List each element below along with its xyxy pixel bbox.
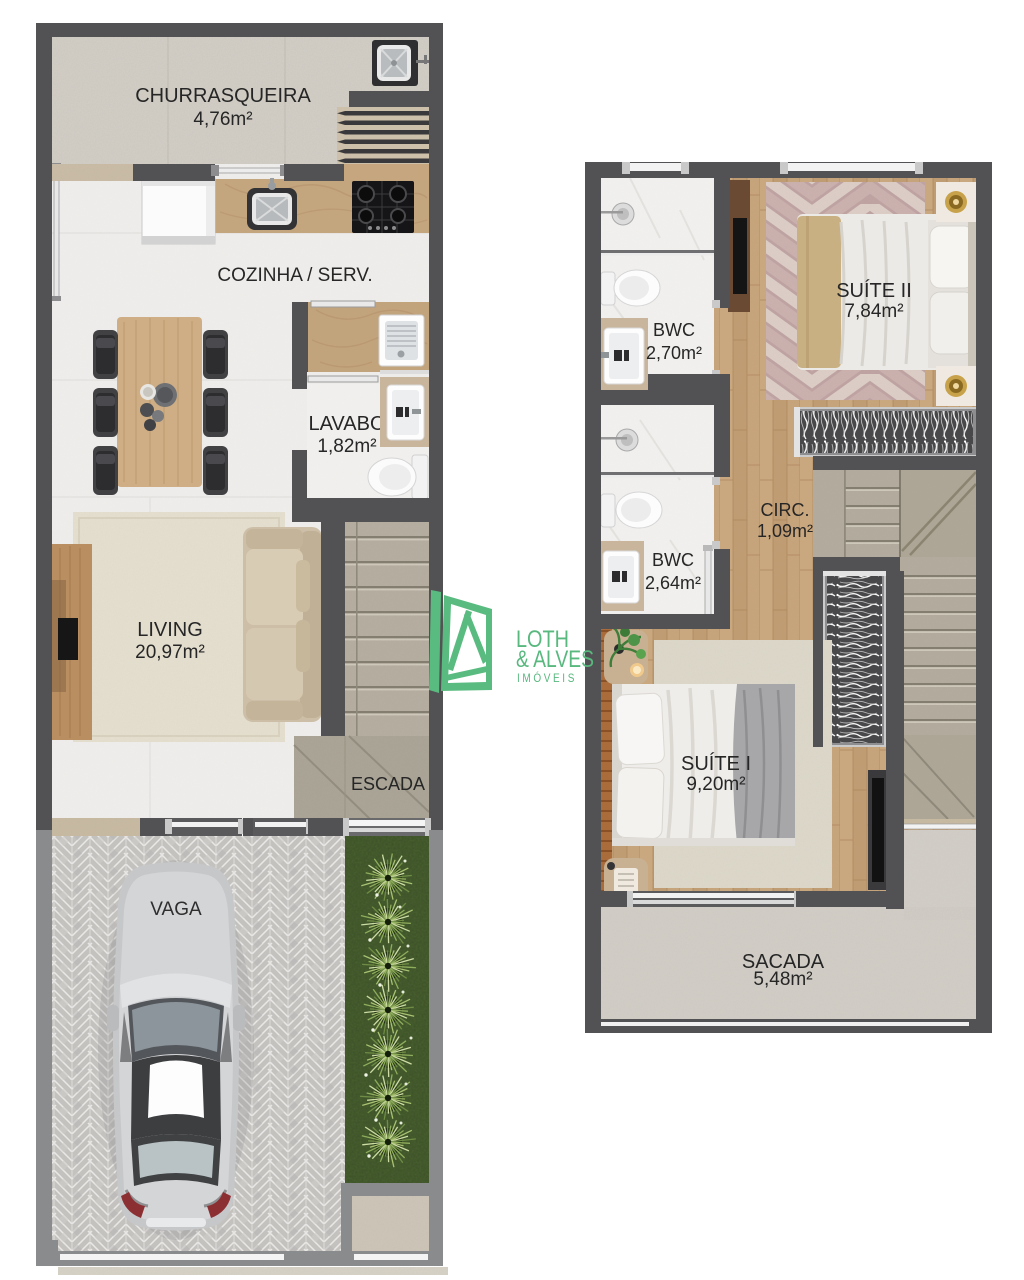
svg-text:9,20m²: 9,20m² xyxy=(686,774,745,795)
svg-text:4,76m²: 4,76m² xyxy=(193,109,252,130)
svg-text:CHURRASQUEIRA: CHURRASQUEIRA xyxy=(135,85,311,107)
svg-text:& ALVES: & ALVES xyxy=(516,646,594,673)
svg-text:VAGA: VAGA xyxy=(150,899,202,920)
svg-text:7,84m²: 7,84m² xyxy=(844,301,903,322)
svg-text:2,64m²: 2,64m² xyxy=(645,573,701,593)
svg-text:5,48m²: 5,48m² xyxy=(753,969,812,990)
svg-text:SUÍTE II: SUÍTE II xyxy=(836,279,912,302)
svg-text:1,09m²: 1,09m² xyxy=(757,521,813,541)
svg-text:1,82m²: 1,82m² xyxy=(317,436,376,457)
svg-text:CIRC.: CIRC. xyxy=(761,500,810,520)
svg-text:20,97m²: 20,97m² xyxy=(135,642,205,663)
svg-text:BWC: BWC xyxy=(653,320,695,340)
svg-text:2,70m²: 2,70m² xyxy=(646,343,702,363)
svg-text:IMÓVEIS: IMÓVEIS xyxy=(517,672,577,685)
svg-text:LAVABO: LAVABO xyxy=(308,413,385,435)
svg-text:ESCADA: ESCADA xyxy=(351,774,425,794)
svg-text:BWC: BWC xyxy=(652,550,694,570)
svg-text:SUÍTE I: SUÍTE I xyxy=(681,752,751,775)
svg-text:COZINHA / SERV.: COZINHA / SERV. xyxy=(217,265,372,286)
svg-text:LIVING: LIVING xyxy=(137,619,203,641)
